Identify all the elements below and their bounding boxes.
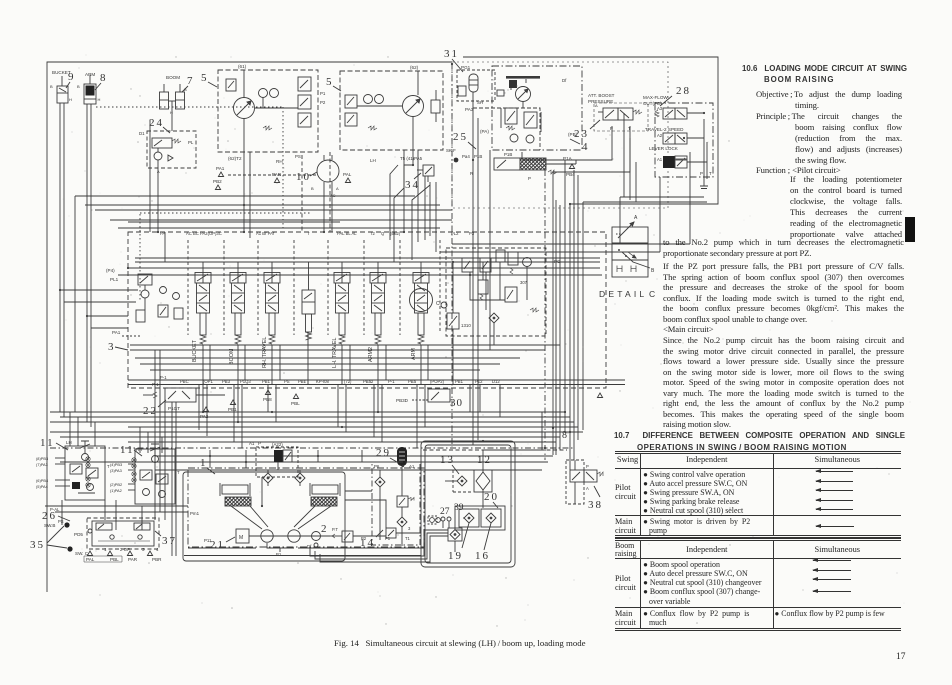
svg-text:PAR: PAR: [128, 557, 138, 562]
svg-text:P12: P12: [475, 379, 483, 384]
svg-text:A1: A1: [409, 464, 415, 469]
svg-text:BOOM: BOOM: [166, 75, 180, 80]
svg-text:(61): (61): [238, 64, 247, 69]
svg-text:22: 22: [143, 405, 158, 417]
svg-text:(3)PA3: (3)PA3: [110, 468, 122, 473]
svg-text:H: H: [170, 110, 173, 115]
svg-text:11: 11: [120, 444, 135, 456]
svg-text:Df: Df: [562, 78, 567, 83]
svg-text:P: P: [528, 176, 531, 181]
svg-text:2: 2: [321, 523, 327, 535]
svg-text:A: A: [586, 486, 589, 491]
svg-text:P-1: P-1: [388, 379, 395, 384]
svg-text:P6: P6: [374, 464, 380, 469]
svg-text:38: 38: [588, 499, 603, 511]
svg-text:8: 8: [562, 430, 567, 441]
svg-text:P: P: [586, 464, 589, 469]
svg-text:PB2: PB2: [213, 179, 222, 184]
svg-text:A: A: [336, 186, 339, 191]
svg-text:28: 28: [676, 85, 691, 97]
svg-text:PB3D: PB3D: [396, 398, 409, 403]
svg-text:24: 24: [149, 117, 164, 129]
svg-text:12: 12: [477, 454, 492, 466]
svg-text:30: 30: [450, 397, 463, 409]
svg-text:A2: A2: [657, 133, 663, 138]
svg-text:8: 8: [100, 72, 106, 84]
svg-text:P-AL: P-AL: [50, 507, 60, 512]
svg-text:B1: B1: [276, 552, 282, 557]
svg-text:(PA): (PA): [480, 129, 489, 134]
svg-text:PB1: PB1: [262, 379, 271, 384]
svg-text:PL2: PL2: [451, 231, 459, 236]
svg-text:(6)PB4: (6)PB4: [36, 478, 49, 483]
svg-text:T: T: [709, 171, 712, 176]
svg-text:T: T: [177, 470, 180, 475]
svg-text:PG1: PG1: [461, 65, 471, 70]
svg-text:(4)PB3: (4)PB3: [110, 462, 122, 467]
svg-text:39: 39: [454, 503, 464, 513]
svg-text:(5)PA4: (5)PA4: [36, 484, 49, 489]
svg-text:LH: LH: [66, 440, 72, 445]
svg-text:ARM: ARM: [85, 72, 95, 77]
svg-text:2 OP: 2 OP: [120, 547, 130, 552]
svg-text:PA3: PA3: [465, 107, 474, 112]
svg-text:PBa2: PBa2: [363, 379, 374, 384]
svg-text:A: A: [634, 215, 638, 221]
svg-text:1: 1: [200, 457, 206, 469]
svg-text:P2: P2: [320, 100, 326, 105]
svg-text:5: 5: [326, 76, 332, 88]
svg-text:10: 10: [296, 171, 311, 183]
svg-text:C: C: [649, 289, 655, 299]
svg-text:7: 7: [187, 75, 193, 87]
svg-text:PL: PL: [188, 140, 194, 145]
svg-text:3: 3: [108, 341, 114, 353]
svg-text:(POP2): (POP2): [430, 379, 445, 384]
svg-text:BUCKET: BUCKET: [192, 339, 198, 362]
svg-text:PA1: PA1: [216, 166, 225, 171]
svg-text:ATT. BOOST: ATT. BOOST: [588, 93, 615, 98]
svg-text:DETAIL: DETAIL: [599, 289, 647, 299]
svg-text:1310: 1310: [461, 323, 471, 328]
svg-text:21: 21: [210, 539, 225, 551]
svg-text:19: 19: [448, 550, 463, 562]
svg-text:5: 5: [201, 72, 207, 84]
svg-text:P.T: P.T: [332, 527, 338, 532]
svg-text:RH. TRAVEL: RH. TRAVEL: [262, 337, 268, 368]
svg-text:H: H: [69, 97, 72, 102]
svg-text:SK.F: SK.F: [446, 148, 456, 153]
svg-text:A1 Br PAr: A1 Br PAr: [256, 231, 275, 236]
svg-text:A1: A1: [249, 441, 255, 446]
svg-text:35: 35: [30, 539, 45, 551]
svg-text:31: 31: [444, 48, 459, 60]
svg-text:T1: T1: [405, 536, 411, 541]
svg-text:P: P: [258, 441, 261, 446]
svg-text:13: 13: [440, 454, 455, 466]
svg-text:C: C: [436, 301, 440, 307]
svg-text:P1B: P1B: [504, 152, 512, 157]
svg-text:PAL: PAL: [86, 557, 95, 562]
svg-text:Pa4: Pa4: [462, 154, 470, 159]
svg-text:29: 29: [376, 447, 391, 459]
svg-text:3: 3: [408, 526, 411, 531]
svg-text:(P4): (P4): [106, 268, 115, 273]
svg-text:(62)T2: (62)T2: [228, 156, 242, 161]
svg-text:PS: PS: [295, 154, 301, 159]
svg-text:PS: PS: [284, 379, 290, 384]
svg-text:P-1: P-1: [160, 375, 167, 380]
svg-text:37: 37: [162, 535, 177, 547]
svg-text:307: 307: [520, 280, 528, 285]
svg-text:P: P: [700, 171, 703, 176]
svg-text:D12: D12: [492, 379, 500, 384]
svg-text:3: 3: [142, 547, 145, 552]
svg-text:T5 (41)PA5: T5 (41)PA5: [400, 156, 423, 161]
svg-text:AC BC PA2(OP)3C: AC BC PA2(OP)3C: [186, 231, 222, 236]
svg-text:PBC: PBC: [180, 379, 189, 384]
svg-text:P: P: [610, 126, 613, 131]
svg-text:16: 16: [475, 550, 490, 562]
svg-text:23: 23: [574, 128, 589, 140]
svg-text:P11: P11: [204, 538, 212, 543]
svg-text:P1: P1: [320, 91, 326, 96]
svg-text:(B62): (B62): [390, 231, 401, 236]
svg-text:TRAVEL-2 SPEED: TRAVEL-2 SPEED: [645, 127, 684, 132]
svg-text:B: B: [50, 84, 53, 89]
svg-text:LEVER LOCK: LEVER LOCK: [649, 146, 679, 151]
svg-text:PG: PG: [554, 259, 561, 264]
svg-text:T2: T2: [370, 231, 376, 236]
svg-text:(72): (72): [344, 379, 352, 384]
svg-text:T: T: [628, 126, 631, 131]
svg-text:Pm1: Pm1: [190, 511, 200, 516]
svg-text:4: 4: [582, 141, 588, 153]
svg-text:SW. C: SW. C: [75, 551, 89, 556]
svg-text:PS: PS: [58, 519, 64, 524]
svg-text:MAX-FLOW: MAX-FLOW: [643, 95, 668, 100]
svg-text:D1: D1: [139, 131, 145, 136]
svg-text:P-1: P-1: [152, 382, 159, 387]
svg-text:(OP1: (OP1: [203, 379, 213, 384]
svg-text:PBL: PBL: [110, 557, 119, 562]
svg-text:(A22): (A22): [272, 442, 283, 447]
svg-text:SW.B: SW.B: [44, 523, 56, 528]
svg-text:4: 4: [156, 547, 159, 552]
svg-text:B: B: [651, 268, 655, 274]
svg-text:H: H: [98, 97, 101, 102]
svg-text:P1: P1: [385, 536, 391, 541]
svg-text:KP-I08: KP-I08: [316, 379, 329, 384]
svg-text:PBL: PBL: [291, 401, 300, 406]
svg-text:PAL BL AL: PAL BL AL: [337, 231, 357, 236]
svg-text:SH: SH: [477, 100, 483, 105]
svg-text:(1)PA2: (1)PA2: [110, 488, 122, 493]
svg-text:11: 11: [40, 437, 55, 449]
svg-text:20: 20: [484, 491, 499, 503]
svg-text:LH: LH: [370, 158, 376, 163]
svg-text:PB1: PB1: [228, 407, 237, 412]
svg-text:9: 9: [68, 71, 74, 83]
svg-text:(8)PB3: (8)PB3: [36, 456, 48, 461]
svg-text:PB3: PB3: [222, 379, 231, 384]
svg-text:1: 1: [104, 547, 107, 552]
svg-text:(2)PB2: (2)PB2: [110, 482, 122, 487]
svg-text:PB1: PB1: [455, 379, 464, 384]
svg-text:BOOM: BOOM: [229, 348, 235, 365]
svg-text:T: T: [307, 231, 310, 236]
svg-text:P3: P3: [469, 231, 475, 236]
svg-text:A: A: [595, 103, 598, 108]
svg-text:RH: RH: [136, 447, 142, 452]
svg-text:LH. TRAVEL: LH. TRAVEL: [332, 338, 338, 368]
svg-text:RH: RH: [276, 159, 283, 164]
svg-text:P1Q3: P1Q3: [240, 379, 251, 384]
svg-text:B: B: [311, 186, 314, 191]
svg-text:ARM2: ARM2: [368, 347, 374, 362]
svg-text:(7)PA3: (7)PA3: [36, 462, 48, 467]
svg-text:B: B: [77, 84, 80, 89]
svg-text:PBa: PBa: [408, 379, 417, 384]
svg-text:14: 14: [360, 537, 375, 549]
svg-text:25: 25: [453, 131, 468, 143]
svg-text:PAL: PAL: [343, 172, 352, 177]
svg-text:27: 27: [440, 507, 450, 517]
svg-text:A: A: [157, 169, 160, 174]
svg-text:PBR: PBR: [152, 557, 162, 562]
svg-text:AC: AC: [330, 193, 336, 198]
svg-text:M: M: [239, 535, 243, 541]
svg-text:PAR: PAR: [272, 172, 282, 177]
svg-text:PL1: PL1: [110, 277, 119, 282]
svg-text:PD5: PD5: [74, 532, 83, 537]
svg-text:PA1: PA1: [112, 330, 121, 335]
svg-text:A1: A1: [657, 157, 663, 162]
svg-text:P1GT: P1GT: [168, 406, 180, 411]
